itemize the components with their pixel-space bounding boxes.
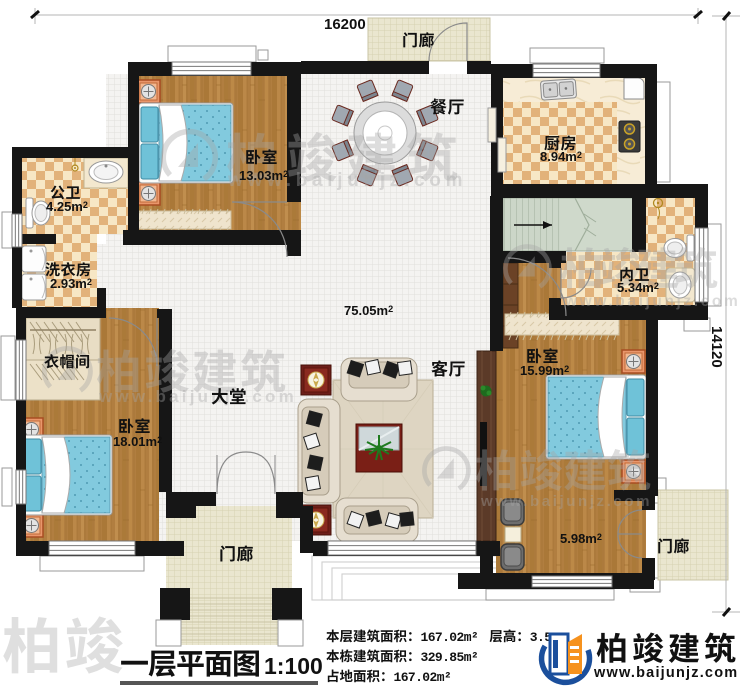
svg-text:5.98m2: 5.98m2 (560, 531, 602, 546)
svg-text:14120: 14120 (708, 326, 725, 368)
svg-text:www.baijunjz.com: www.baijunjz.com (98, 387, 297, 406)
svg-text:2.93m2: 2.93m2 (50, 276, 92, 291)
svg-text:1:100: 1:100 (264, 653, 323, 679)
svg-text:329.85m²: 329.85m² (421, 650, 479, 665)
svg-text:5.34m2: 5.34m2 (617, 280, 659, 295)
svg-text:18.01m2: 18.01m2 (113, 434, 162, 449)
svg-text:75.05m2: 75.05m2 (344, 303, 393, 318)
svg-text:167.02m²: 167.02m² (394, 670, 452, 685)
svg-text:www.baijunjz.com: www.baijunjz.com (564, 293, 740, 310)
svg-text:16200: 16200 (324, 16, 366, 33)
svg-text:13.03m2: 13.03m2 (239, 168, 288, 183)
svg-text:www.baijunjz.com: www.baijunjz.com (593, 665, 738, 681)
svg-text:www.baijunjz.com: www.baijunjz.com (480, 493, 652, 510)
svg-text:8.94m2: 8.94m2 (540, 149, 582, 164)
svg-text:15.99m2: 15.99m2 (520, 363, 569, 378)
svg-text:167.02m²: 167.02m² (421, 630, 479, 645)
svg-text:4.25m2: 4.25m2 (46, 199, 88, 214)
